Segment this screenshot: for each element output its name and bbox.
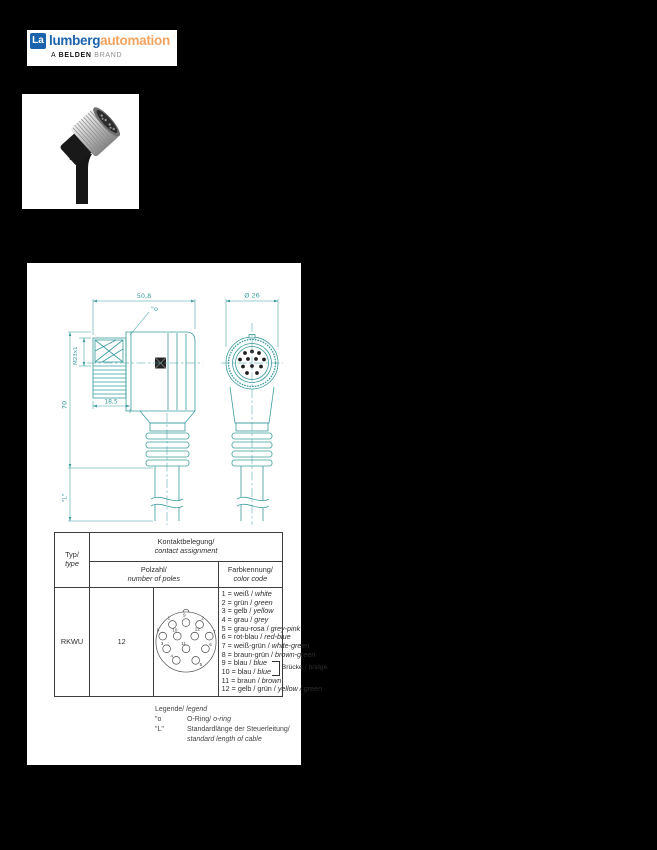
- pin-label: 10: [173, 627, 178, 632]
- right-angle-connector-photo: [22, 94, 139, 209]
- logo-name-lumberg: lumberg: [49, 33, 100, 48]
- lumberg-logo-name: lumbergautomation: [49, 33, 170, 48]
- legend-title: Legende/ legend: [155, 705, 290, 715]
- tagline-a: A: [51, 52, 56, 59]
- legend-item-length: "L" Standardlänge der Steuerleitung/: [155, 725, 290, 735]
- legend-length-text-de: Standardlänge der Steuerleitung/: [187, 725, 290, 735]
- logo-name-automation: automation: [100, 33, 170, 48]
- bridge-bracket: [272, 661, 280, 676]
- dim-height-label: 70: [61, 401, 69, 409]
- lumberg-logo: La lumbergautomation A BELDEN BRAND: [27, 30, 177, 66]
- bridge-label: Brücke / bridge: [282, 664, 328, 673]
- header-color-en: color code: [233, 574, 267, 583]
- belden-brand-tagline: A BELDEN BRAND: [51, 52, 122, 59]
- header-number-of-poles: Polzahl/ number of poles: [90, 562, 219, 588]
- pin-label: 12: [195, 626, 200, 631]
- tagline-brand: BRAND: [94, 52, 122, 59]
- color-code-item: 12 = gelb / grün / yellow / green: [222, 685, 282, 694]
- front-view: [221, 323, 283, 525]
- legend-oring-text: O-Ring/ o-ring: [187, 715, 290, 725]
- header-type-de: Typ/: [65, 550, 79, 559]
- header-contact-en: contact assignment: [155, 546, 218, 555]
- dim-cable-label: "L": [62, 493, 69, 502]
- legend-item-oring: "o O-Ring/ o-ring: [155, 715, 290, 725]
- cell-poles-count: 12: [90, 588, 154, 697]
- color-code-list: 1 = weiß / white 2 = grün / green 3 = ge…: [219, 588, 282, 694]
- lumberg-logo-mark-icon: La: [30, 33, 46, 49]
- pin-label: 7: [213, 629, 216, 634]
- pin-layout-diagram: 1 9 2 8 10 12 7 3 11 6 4 5: [154, 601, 218, 681]
- header-poles-de: Polzahl/: [141, 565, 167, 574]
- legend-title-de: Legende/: [155, 706, 186, 713]
- header-contact-assignment: Kontaktbelegung/ contact assignment: [90, 533, 283, 562]
- legend-block: Legende/ legend "o O-Ring/ o-ring "L" St…: [155, 705, 290, 745]
- header-type-en: type: [65, 559, 79, 568]
- product-photo: [22, 94, 139, 209]
- header-poles-en: number of poles: [128, 574, 180, 583]
- side-view: [87, 332, 203, 525]
- dim-nut-depth-label: 18,5: [104, 399, 118, 406]
- dim-width-label: 50,8: [137, 292, 151, 300]
- pin-label: 3: [161, 640, 164, 645]
- pin-label: 5: [200, 662, 203, 667]
- cell-type-rkwu: RKWU: [55, 588, 90, 697]
- oring-ref-label: "o: [151, 305, 158, 313]
- pin-label: 11: [181, 640, 186, 645]
- legend-length-symbol: "L": [155, 725, 187, 735]
- cell-pin-diagram: 1 9 2 8 10 12 7 3 11 6 4 5: [154, 588, 218, 697]
- legend-item-length-en: standard length of cable: [155, 735, 290, 745]
- legend-title-en: legend: [186, 706, 207, 713]
- header-color-code: Farbkennung/ color code: [218, 562, 282, 588]
- pin-label: 9: [183, 612, 186, 617]
- header-color-de: Farbkennung/: [228, 565, 273, 574]
- header-type: Typ/ type: [55, 533, 90, 588]
- legend-length-text-en: standard length of cable: [187, 735, 290, 745]
- dim-diameter-label: Ø 26: [244, 292, 259, 300]
- legend-oring-symbol: "o: [155, 715, 187, 725]
- cell-color-codes: 1 = weiß / white 2 = grün / green 3 = ge…: [218, 588, 282, 697]
- pin-label: 6: [210, 641, 213, 646]
- table-row: RKWU 12 1 9 2 8: [55, 588, 283, 697]
- header-contact-de: Kontaktbelegung/: [158, 537, 215, 546]
- contact-assignment-table: Typ/ type Kontaktbelegung/ contact assig…: [54, 532, 283, 697]
- datasheet-drawing-panel: 50,8 "o M23x1 18,5 70 "L" Ø 26: [27, 263, 301, 765]
- dim-thread-label: M23x1: [73, 347, 79, 366]
- technical-drawing: 50,8 "o M23x1 18,5 70 "L" Ø 26: [27, 263, 301, 532]
- tagline-belden: BELDEN: [59, 52, 92, 59]
